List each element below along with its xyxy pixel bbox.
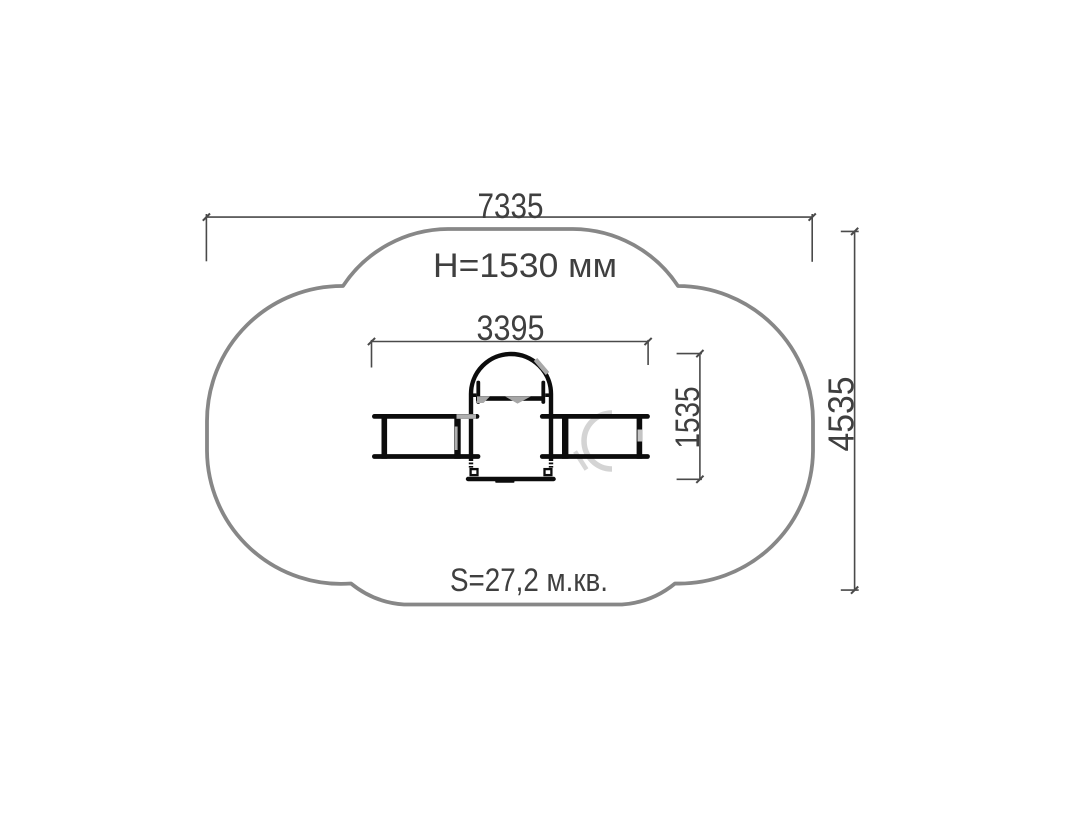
- svg-text:1535: 1535: [669, 387, 707, 449]
- svg-text:4535: 4535: [821, 377, 862, 452]
- svg-text:H=1530 мм: H=1530 мм: [433, 247, 617, 285]
- svg-text:S=27,2 м.кв.: S=27,2 м.кв.: [450, 562, 608, 598]
- svg-text:3395: 3395: [477, 309, 545, 348]
- svg-text:7335: 7335: [478, 187, 544, 226]
